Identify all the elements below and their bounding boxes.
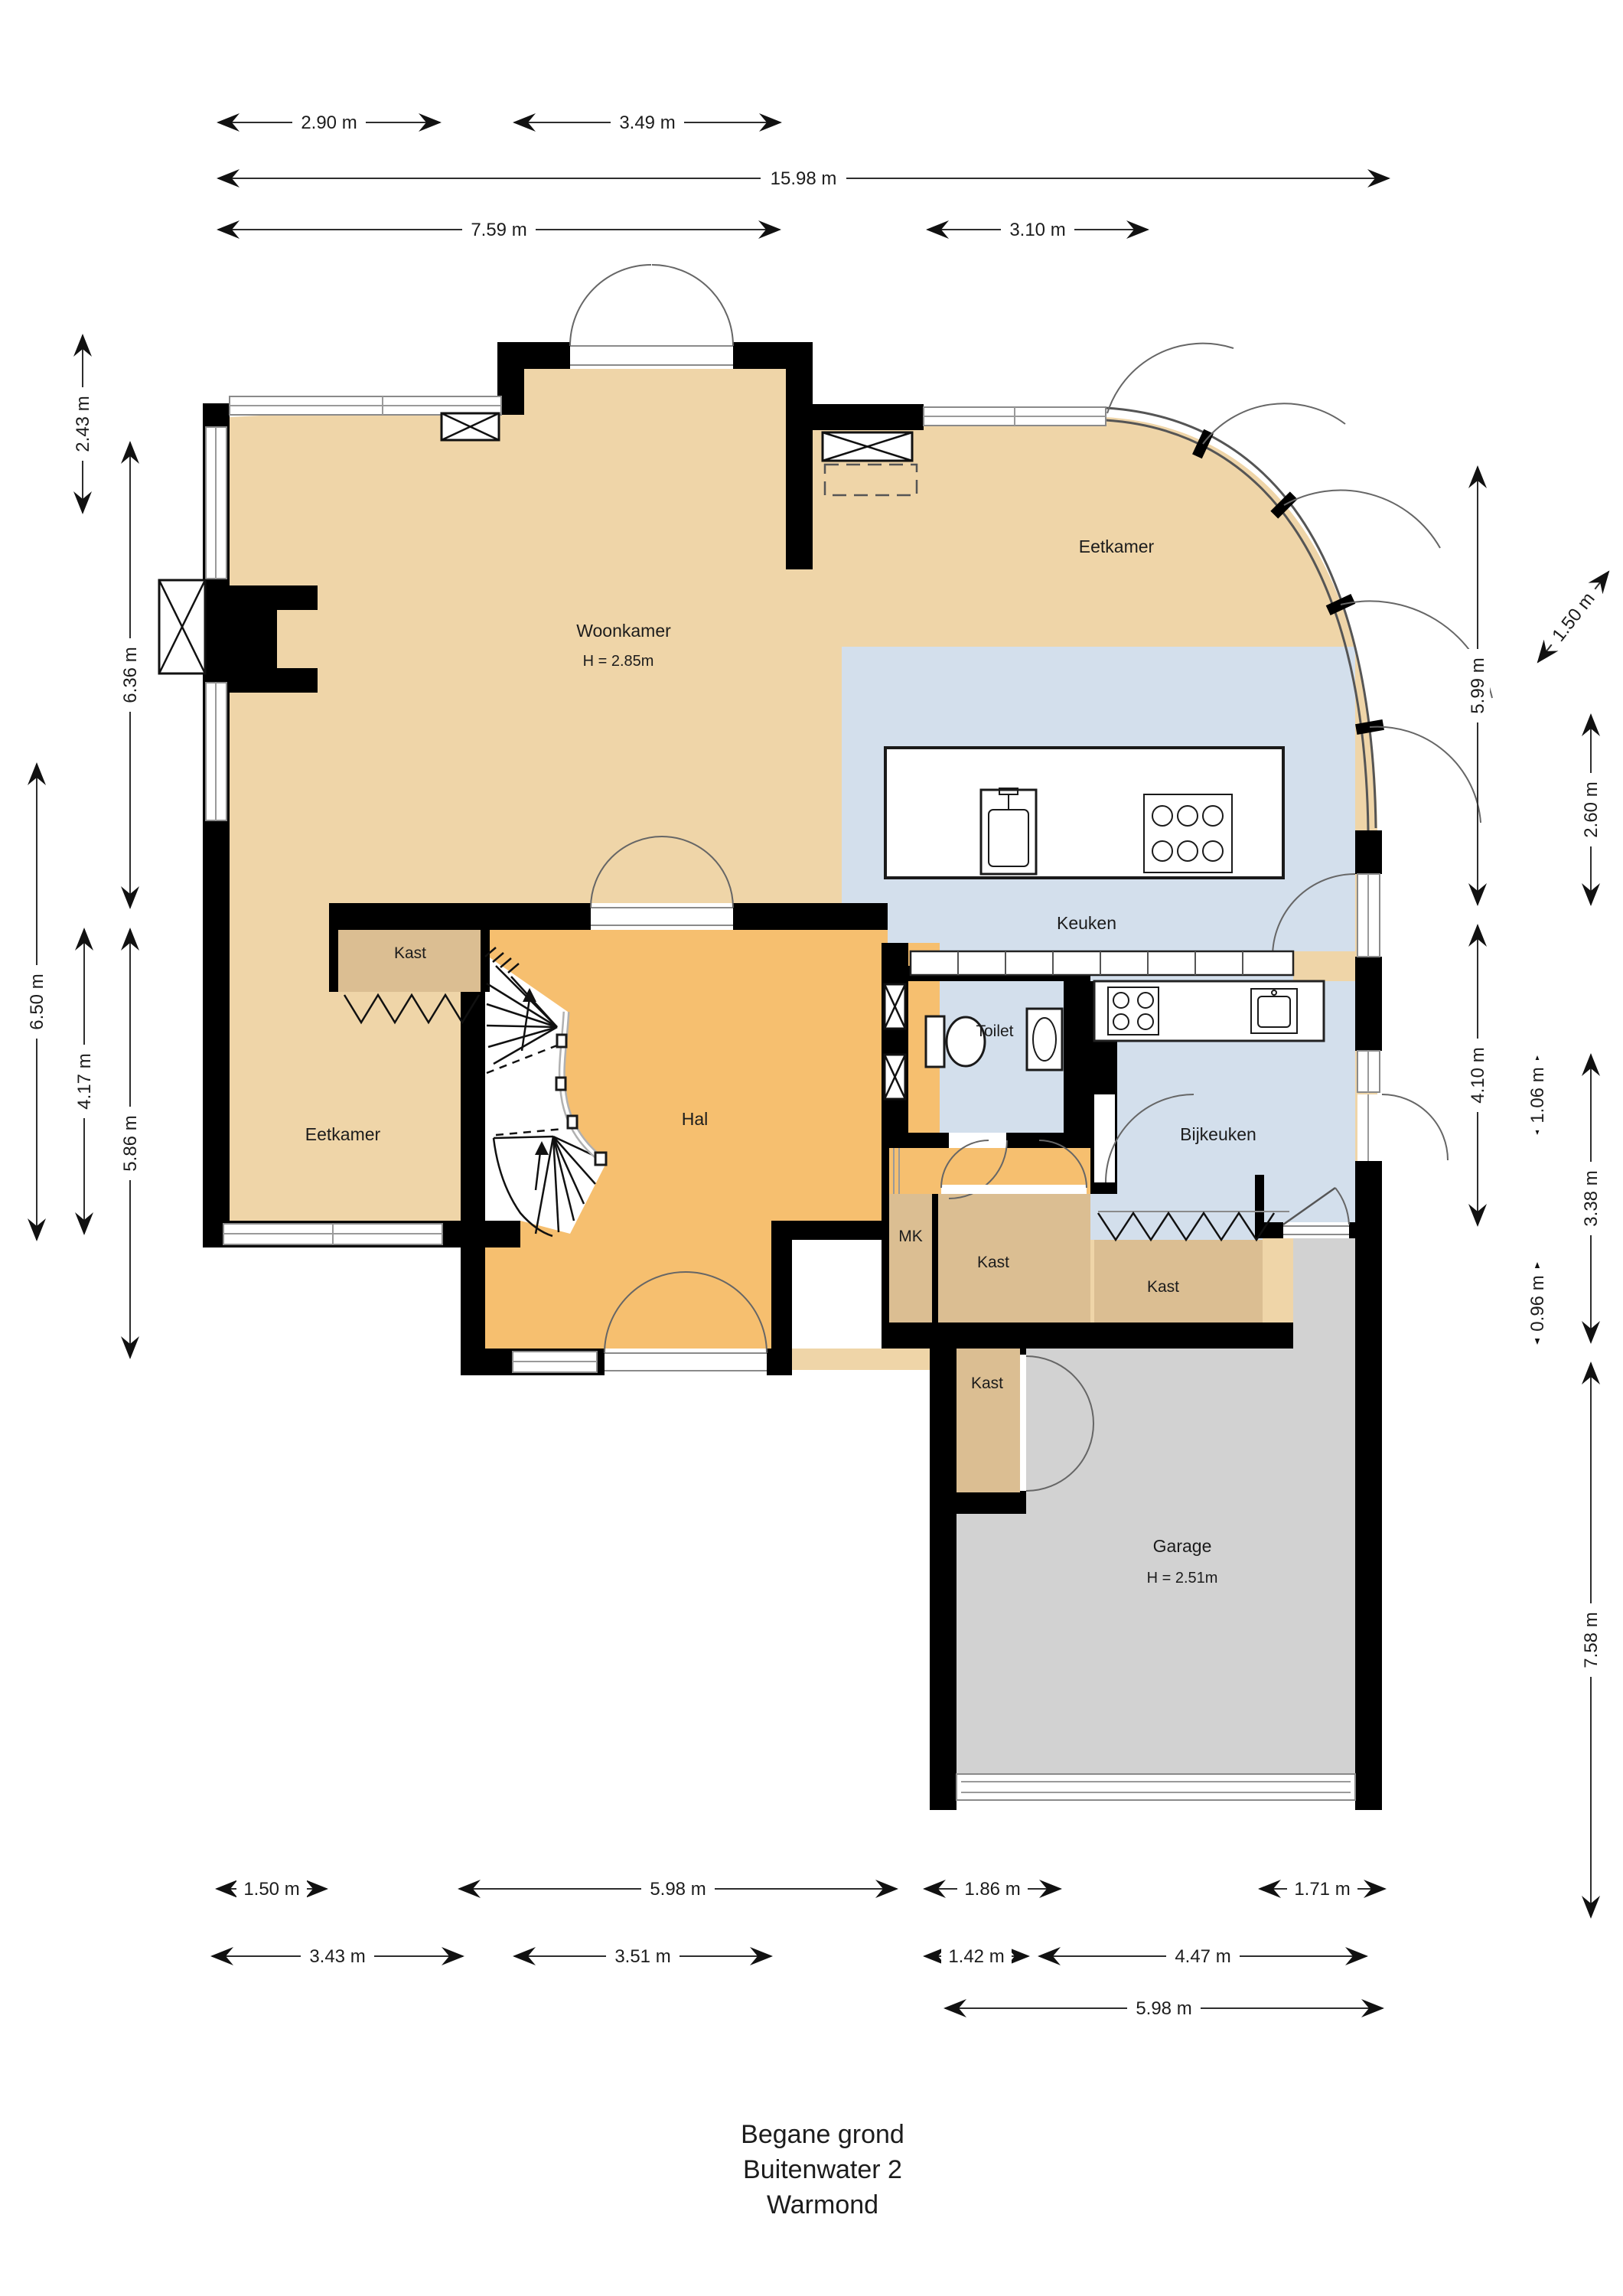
dim-right-7: 0.96 m bbox=[1526, 1264, 1549, 1343]
svg-text:7.58 m: 7.58 m bbox=[1581, 1612, 1602, 1668]
floorplan-page: Woonkamer H = 2.85m Eetkamer Keuken Toil… bbox=[0, 0, 1623, 2296]
label-hal: Hal bbox=[682, 1109, 709, 1129]
floor-mk bbox=[889, 1194, 932, 1322]
svg-text:3.51 m: 3.51 m bbox=[614, 1946, 670, 1967]
kitchen-island bbox=[885, 748, 1283, 878]
svg-text:2.43 m: 2.43 m bbox=[73, 396, 93, 452]
svg-text:15.98 m: 15.98 m bbox=[771, 168, 837, 189]
bijkeuken-counter bbox=[1094, 981, 1324, 1041]
svg-text:4.17 m: 4.17 m bbox=[74, 1053, 95, 1109]
label-bijkeuken: Bijkeuken bbox=[1180, 1124, 1256, 1144]
svg-text:4.47 m: 4.47 m bbox=[1175, 1946, 1230, 1967]
svg-text:1.06 m: 1.06 m bbox=[1527, 1067, 1548, 1123]
svg-text:6.50 m: 6.50 m bbox=[27, 974, 47, 1029]
kitchen-counter bbox=[911, 951, 1293, 975]
svg-text:4.10 m: 4.10 m bbox=[1468, 1047, 1488, 1103]
svg-text:5.98 m: 5.98 m bbox=[1136, 1998, 1191, 2019]
svg-text:0.96 m: 0.96 m bbox=[1527, 1275, 1548, 1331]
svg-text:5.86 m: 5.86 m bbox=[120, 1115, 141, 1171]
svg-text:1.86 m: 1.86 m bbox=[964, 1879, 1020, 1900]
svg-text:3.10 m: 3.10 m bbox=[1009, 220, 1065, 240]
label-keuken: Keuken bbox=[1057, 913, 1116, 933]
svg-text:1.71 m: 1.71 m bbox=[1294, 1879, 1350, 1900]
title-address: Buitenwater 2 bbox=[743, 2155, 902, 2184]
label-toilet: Toilet bbox=[976, 1022, 1013, 1040]
floor-kast-hall bbox=[938, 1194, 1090, 1322]
label-kast-hall: Kast bbox=[977, 1254, 1009, 1271]
svg-text:5.99 m: 5.99 m bbox=[1468, 657, 1488, 713]
svg-text:5.98 m: 5.98 m bbox=[650, 1879, 706, 1900]
svg-text:3.38 m: 3.38 m bbox=[1581, 1170, 1602, 1226]
floor-notch bbox=[792, 1240, 882, 1349]
label-eetkamer-top: Eetkamer bbox=[1079, 536, 1155, 556]
svg-text:1.50 m: 1.50 m bbox=[243, 1879, 299, 1900]
island-sink-icon bbox=[981, 788, 1036, 874]
floorplan-canvas: Woonkamer H = 2.85m Eetkamer Keuken Toil… bbox=[0, 0, 1623, 2296]
floor-kast-garage bbox=[957, 1349, 1020, 1496]
label-garage: Garage bbox=[1153, 1536, 1212, 1556]
svg-text:3.49 m: 3.49 m bbox=[619, 113, 675, 133]
svg-text:2.90 m: 2.90 m bbox=[301, 113, 357, 133]
svg-text:7.59 m: 7.59 m bbox=[471, 220, 526, 240]
svg-text:3.43 m: 3.43 m bbox=[309, 1946, 365, 1967]
label-garage-height: H = 2.51m bbox=[1147, 1570, 1218, 1587]
label-kast-garage: Kast bbox=[971, 1375, 1003, 1392]
svg-text:1.42 m: 1.42 m bbox=[948, 1946, 1004, 1967]
svg-text:6.36 m: 6.36 m bbox=[120, 647, 141, 703]
dim-right-4: 1.06 m bbox=[1526, 1057, 1549, 1133]
label-kast-bijkeuken: Kast bbox=[1147, 1278, 1179, 1296]
svg-text:2.60 m: 2.60 m bbox=[1581, 781, 1602, 837]
label-eetkamer-left: Eetkamer bbox=[305, 1124, 381, 1144]
label-woonkamer: Woonkamer bbox=[576, 621, 671, 641]
title-floor: Begane grond bbox=[741, 2120, 904, 2149]
label-mk: MK bbox=[898, 1228, 923, 1245]
label-kast-stairs: Kast bbox=[394, 944, 426, 962]
title-city: Warmond bbox=[767, 2190, 878, 2219]
label-woonkamer-height: H = 2.85m bbox=[583, 653, 654, 670]
